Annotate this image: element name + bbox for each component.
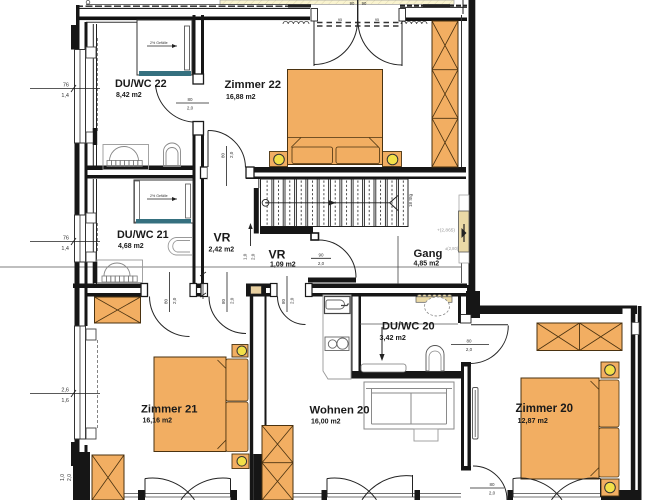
svg-text:16,00 m2: 16,00 m2 — [311, 419, 341, 426]
svg-text:1,4: 1,4 — [61, 246, 69, 252]
svg-text:1,4: 1,4 — [61, 93, 69, 99]
svg-text:2,0: 2,0 — [187, 106, 194, 111]
svg-text:76: 76 — [63, 236, 69, 242]
svg-text:DU/WC 20: DU/WC 20 — [382, 321, 435, 333]
svg-text:+(2,865): +(2,865) — [437, 228, 455, 234]
svg-text:2,0: 2,0 — [251, 253, 256, 260]
svg-text:76: 76 — [63, 83, 69, 89]
svg-text:1,09 m2: 1,09 m2 — [270, 262, 296, 269]
svg-text:2,42 m2: 2,42 m2 — [209, 247, 235, 254]
svg-text:DU/WC 21: DU/WC 21 — [117, 229, 169, 241]
svg-text:95: 95 — [375, 18, 379, 22]
svg-text:2,0: 2,0 — [229, 151, 234, 158]
svg-text:90: 90 — [318, 253, 324, 258]
svg-text:2,0: 2,0 — [290, 297, 295, 304]
svg-text:12,87 m2: 12,87 m2 — [518, 416, 548, 425]
svg-text:VR: VR — [214, 231, 231, 245]
svg-text:DU/WC 22: DU/WC 22 — [115, 78, 167, 90]
svg-text:2,0: 2,0 — [230, 297, 235, 304]
svg-text:80: 80 — [281, 298, 286, 304]
svg-text:Zimmer 20: Zimmer 20 — [516, 403, 574, 415]
svg-text:Zimmer 21: Zimmer 21 — [141, 404, 198, 416]
svg-text:18 Stg: 18 Stg — [408, 193, 413, 207]
svg-text:2,0: 2,0 — [318, 261, 325, 266]
svg-text:95: 95 — [338, 18, 342, 22]
svg-text:80: 80 — [187, 97, 193, 102]
svg-text:80: 80 — [489, 482, 495, 487]
svg-text:80: 80 — [221, 298, 226, 304]
svg-text:±(2,80): ±(2,80) — [445, 246, 459, 251]
svg-text:80: 80 — [466, 339, 472, 344]
svg-text:8,42 m2: 8,42 m2 — [116, 92, 142, 99]
svg-text:80: 80 — [164, 298, 169, 304]
svg-text:2,0: 2,0 — [67, 474, 73, 481]
svg-text:1,6: 1,6 — [61, 398, 69, 404]
svg-text:2,0: 2,0 — [172, 297, 177, 304]
svg-text:2% Gefälle: 2% Gefälle — [150, 194, 168, 198]
svg-text:2,0: 2,0 — [466, 347, 473, 352]
svg-text:Zimmer 22: Zimmer 22 — [225, 79, 282, 91]
svg-text:80: 80 — [221, 152, 226, 158]
svg-text:4,85 m2: 4,85 m2 — [414, 261, 440, 268]
svg-text:Gang: Gang — [414, 248, 443, 260]
svg-text:4,68 m2: 4,68 m2 — [118, 243, 144, 250]
svg-text:2% Gefälle: 2% Gefälle — [150, 41, 168, 45]
svg-text:3,42 m2: 3,42 m2 — [380, 333, 406, 342]
svg-text:VR: VR — [269, 248, 286, 262]
svg-text:90: 90 — [362, 1, 367, 6]
svg-text:1,0: 1,0 — [60, 474, 66, 481]
svg-text:2,6: 2,6 — [61, 388, 69, 394]
svg-text:16,88 m2: 16,88 m2 — [226, 94, 256, 101]
svg-text:16,16 m2: 16,16 m2 — [143, 418, 173, 425]
svg-text:1,0: 1,0 — [243, 253, 248, 260]
svg-text:2,0: 2,0 — [489, 491, 496, 496]
svg-text:90: 90 — [350, 1, 355, 6]
svg-text:Wohnen 20: Wohnen 20 — [310, 405, 370, 417]
